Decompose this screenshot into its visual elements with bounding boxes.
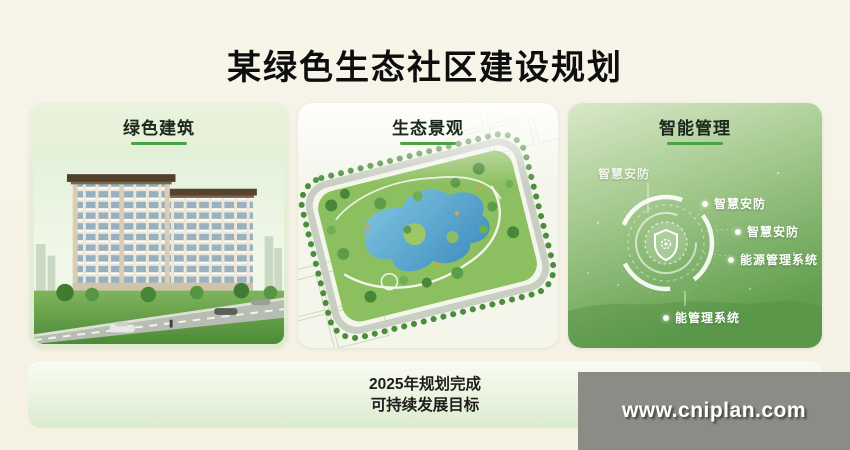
page-title: 某绿色生态社区建设规划 <box>0 40 850 89</box>
panel-green-building: 绿色建筑 <box>30 103 288 348</box>
panel-smart-management-label: 智能管理 <box>659 114 731 139</box>
diagram-label-smart-security-1: 智慧安防 <box>702 195 766 212</box>
watermark-banner: www.cniplan.com <box>578 372 850 450</box>
panel-smart-management: 智能管理 智慧安防 智慧安防 智慧安防 能源管理系统 能管理系统 <box>568 103 822 348</box>
shield-gear-icon <box>655 230 677 260</box>
panel-smart-management-header: 智能管理 <box>568 103 822 145</box>
diagram-label-energy-management: 能源管理系统 <box>728 251 818 268</box>
diagram-label-smart-security-2: 智慧安防 <box>735 223 799 240</box>
panel-eco-landscape: 生态景观 <box>298 103 558 348</box>
green-underline <box>400 142 456 145</box>
slide: 某绿色生态社区建设规划 绿色建筑 <box>0 0 850 450</box>
panel-green-building-header: 绿色建筑 <box>30 103 288 145</box>
diagram-label-smart-security-topleft: 智慧安防 <box>598 165 650 182</box>
residential-building-render <box>34 147 284 344</box>
bullet-dot-icon <box>663 315 669 321</box>
bullet-dot-icon <box>702 201 708 207</box>
panel-eco-landscape-header: 生态景观 <box>298 103 558 145</box>
building-illustration <box>34 147 284 344</box>
panel-green-building-label: 绿色建筑 <box>123 114 195 139</box>
bullet-dot-icon <box>728 257 734 263</box>
green-underline <box>667 142 723 145</box>
green-underline <box>131 142 187 145</box>
panel-eco-landscape-label: 生态景观 <box>392 114 464 139</box>
watermark-text: www.cniplan.com <box>622 399 806 423</box>
bullet-dot-icon <box>735 229 741 235</box>
diagram-label-energy-system-bottom: 能管理系统 <box>663 309 740 326</box>
